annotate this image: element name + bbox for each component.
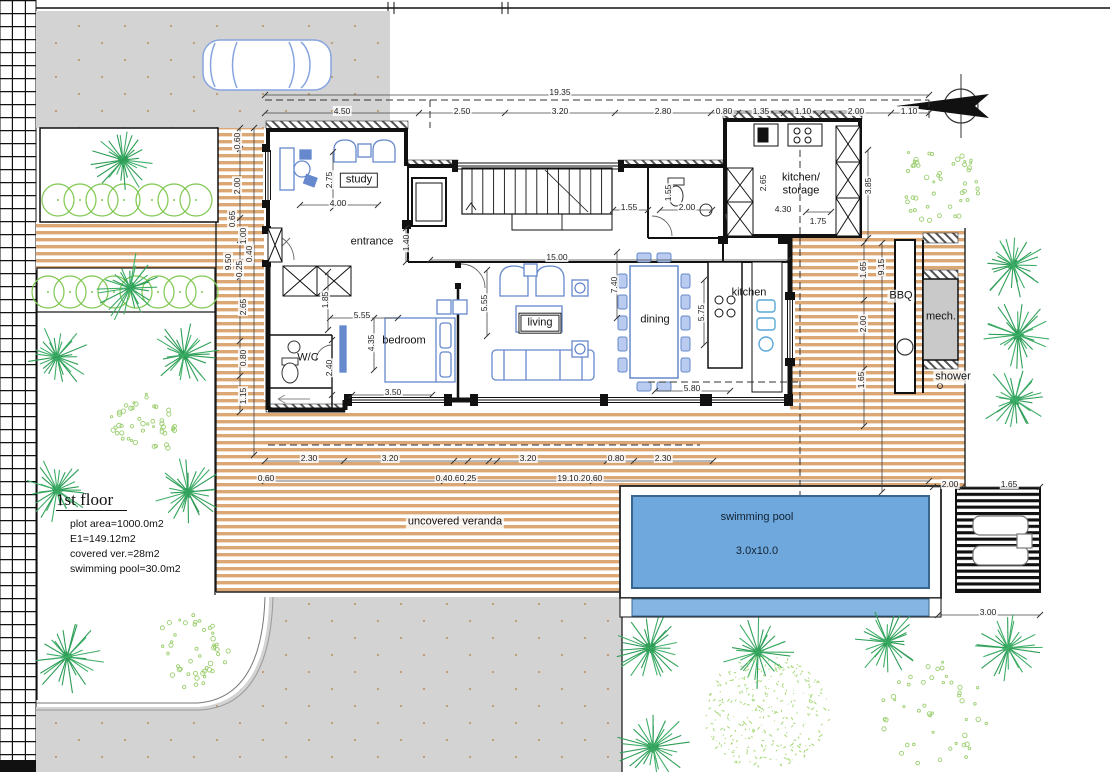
- side-table: [524, 264, 537, 276]
- bbq-sink: [897, 339, 913, 355]
- sunbed: [973, 516, 1028, 535]
- info-line: E1=149.12m2: [70, 533, 236, 545]
- floor-info-block: 1st floor plot area=1000.0m2 E1=149.12m2…: [56, 490, 236, 575]
- car: [203, 40, 331, 90]
- desk: [280, 148, 294, 190]
- floorplan-page: 19.354.502.503.202.800.801.351.102.001.1…: [0, 0, 1110, 772]
- pool-size-label: 3.0x10.0: [736, 545, 778, 557]
- coffee-table: [516, 306, 562, 332]
- mech-room: [923, 279, 958, 360]
- armchair: [373, 140, 395, 162]
- pillow: [440, 323, 451, 348]
- pool-label: swimming pool: [721, 511, 794, 523]
- strip-end-block: [0, 760, 36, 772]
- kitchen-island: [708, 262, 742, 368]
- floor-title: 1st floor: [56, 490, 127, 511]
- armchair: [536, 266, 564, 296]
- armchair: [334, 140, 356, 162]
- swimming-pool: [620, 486, 941, 617]
- info-line: swimming pool=30.0m2: [70, 563, 236, 575]
- info-line: plot area=1000.0m2: [70, 518, 236, 530]
- side-table: [358, 144, 371, 157]
- road-crossing-strip: [0, 0, 36, 772]
- sunbed: [973, 546, 1028, 565]
- elevator: [412, 178, 446, 226]
- pillow: [440, 352, 451, 377]
- sunbed-deck: [956, 488, 1040, 592]
- tv: [340, 326, 346, 372]
- side-table: [1017, 534, 1032, 548]
- info-line: covered ver.=28m2: [70, 548, 236, 560]
- bbq-counter: [895, 240, 915, 393]
- floorplan-drawing: [0, 0, 1110, 772]
